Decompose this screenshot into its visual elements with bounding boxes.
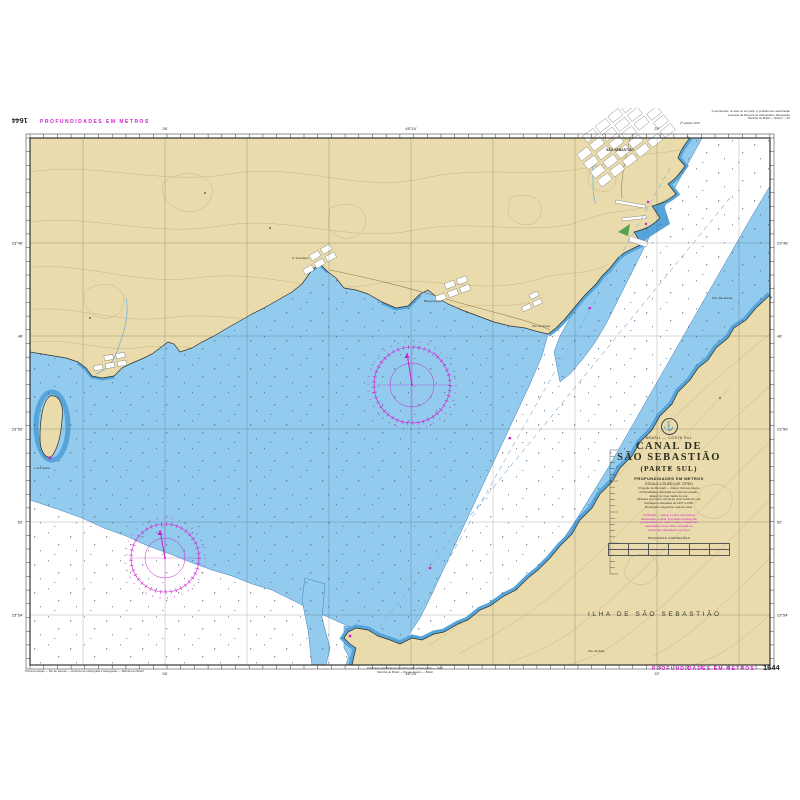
beach-label: Barequeçaba [424,299,442,303]
graticule-label: 52' [18,520,23,525]
graticule-label: 23°46' [12,241,23,246]
depths-note-bottom-right: PROFUNDIDADES EM METROS [652,666,755,672]
buoy [589,307,592,310]
buoy [429,567,432,570]
pier-light [645,223,647,225]
graticule-label: 23°54' [12,613,23,618]
edition-note-magenta: 2ª edição 1973 [680,122,790,126]
chart-number-top-left: 1644 [12,116,28,123]
nautical-chart-sheet: 26'26'45°24'45°24'22'22'23°46'23°46'48'4… [0,0,800,800]
town-label: SÃO SEBASTIÃO [606,148,634,152]
islet-label: I. dos Gatos [34,466,50,470]
imprint-note-bottom-left: Primeira edição — Rio de Janeiro — Diret… [25,670,143,674]
islet-light [49,457,52,460]
chart-number-bottom-right: 1644 [763,663,780,672]
buoy [509,437,512,440]
graticule-label: 45°24' [405,126,416,131]
pier-light [647,201,649,203]
graticule-label: 26' [162,126,167,131]
graticule-label: 23°50' [12,427,23,432]
graticule-label: 23°50' [777,427,788,432]
depths-note-top-left: PROFUNDIDADES EM METROS [40,119,150,125]
island-name-label: ILHA DE SÃO SEBASTIÃO [588,611,722,618]
graticule-label: 22' [654,126,659,131]
chart-map: 26'26'45°24'45°24'22'22'23°46'23°46'48'4… [0,108,800,698]
publisher-note-line: Marinha do Brasil — Rio de Janeiro — Bra… [325,671,485,675]
graticule-label: 48' [777,334,782,339]
graticule-label: 23°46' [777,241,788,246]
beach-label: S. Francisco [292,256,309,260]
point-label: Pta. da Sela [588,649,604,653]
graticule-label: 48' [18,334,23,339]
graticule-label: 26' [162,671,167,676]
graticule-label: 52' [777,520,782,525]
cove-light [349,635,352,638]
reproduction-note: A reprodução, no todo ou em parte, é pro… [680,110,790,126]
publisher-note: Publicada pela Diretoria de Hidrografia … [325,667,485,674]
graticule-label: 23°54' [777,613,788,618]
point-label: Pta. do Araçá [532,324,550,328]
point-label: Pta. das Canas [712,296,733,300]
